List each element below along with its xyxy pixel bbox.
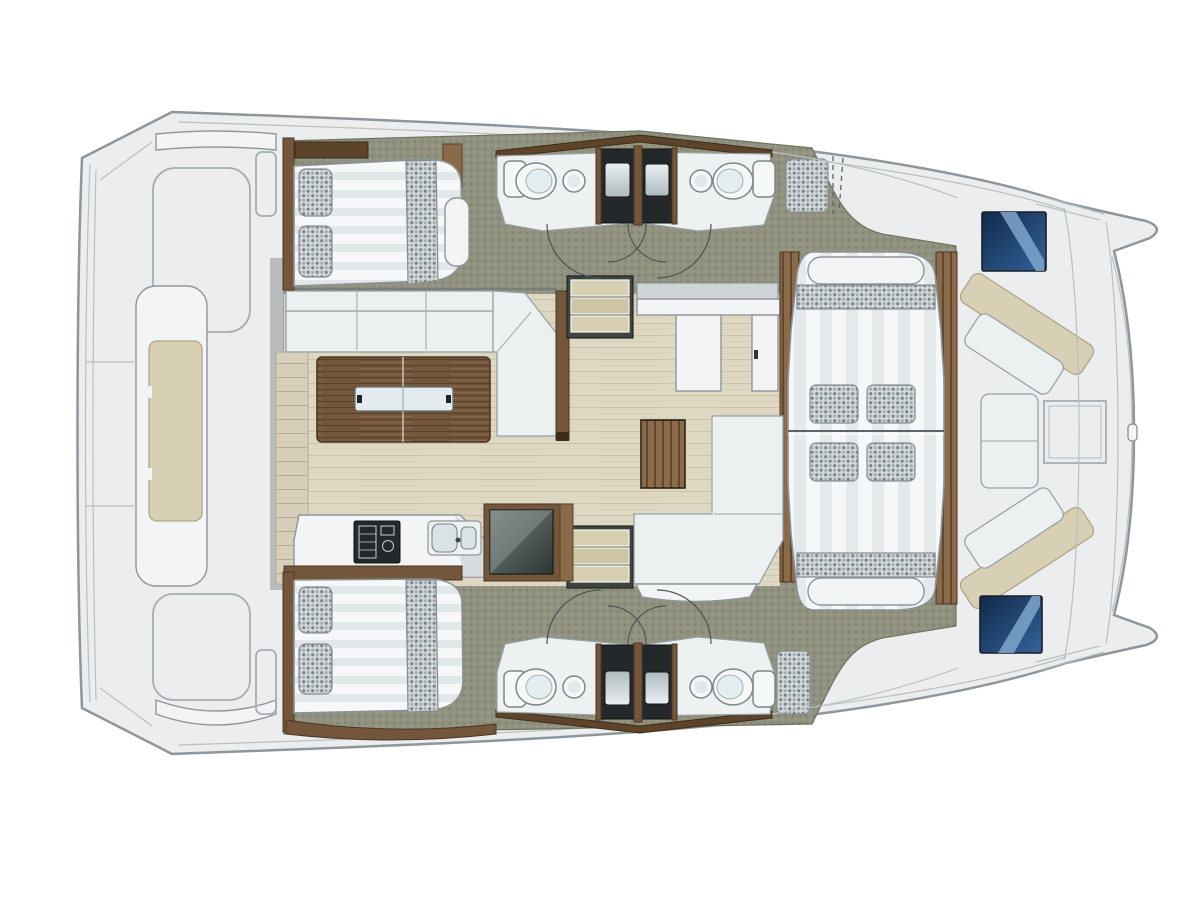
blanket-band	[406, 160, 438, 284]
coffee-table	[641, 420, 685, 488]
aft-sunpad-cushion	[149, 341, 202, 521]
galley-aft-trim	[284, 566, 462, 580]
pillow	[299, 169, 332, 216]
washbasin-inner	[568, 175, 581, 188]
blanket-band	[406, 580, 438, 712]
toilet-bowl-inner	[717, 169, 743, 193]
fridge-side-trim	[560, 504, 573, 581]
shower-divider	[634, 146, 642, 225]
pillow	[867, 385, 915, 423]
floor-plan-canvas	[0, 0, 1200, 900]
sunpad-notch-1	[145, 386, 152, 398]
sofa-back	[286, 291, 493, 311]
table-handle-left	[357, 395, 362, 403]
sink-basin-small	[461, 527, 476, 549]
pillow	[810, 443, 858, 481]
forward-lounge	[788, 252, 957, 610]
deck-pad-port	[786, 159, 828, 212]
bow-cleat	[1128, 424, 1137, 441]
stairs-port	[567, 276, 633, 338]
cockpit-table	[1044, 401, 1106, 463]
toilet-bowl-inner	[526, 169, 552, 193]
counter-back-band	[637, 283, 778, 299]
sunbed-headrest-bottom	[808, 578, 924, 605]
deck-hatch-port	[982, 212, 1046, 271]
step	[571, 298, 629, 314]
step	[571, 566, 629, 582]
pillow	[299, 226, 332, 277]
cabin-bulkhead-trim	[283, 138, 294, 290]
chaise-rim	[636, 584, 757, 602]
deck-pad-starboard	[777, 651, 810, 714]
shower-tray	[605, 163, 630, 197]
cabin-bulkhead-trim	[283, 572, 294, 732]
counter-top	[637, 299, 780, 315]
toilet-tank	[753, 161, 775, 197]
headboard-trim	[295, 142, 368, 158]
berth-foot-bench	[445, 198, 469, 266]
step	[571, 548, 629, 564]
refrigerator	[484, 504, 573, 581]
counter-column	[676, 315, 721, 391]
sunbed-band-bottom	[797, 553, 935, 577]
table-glass-insert	[355, 387, 453, 411]
step	[571, 316, 629, 332]
sink-basin-main	[432, 524, 457, 552]
galley	[284, 504, 573, 581]
stove	[354, 521, 400, 563]
transom-step-top	[156, 131, 276, 150]
shower-tray	[645, 164, 669, 196]
faucet	[456, 538, 461, 543]
shower-trim	[672, 148, 677, 224]
partition-base	[556, 432, 569, 441]
sunpad-notch-2	[145, 468, 152, 480]
floor-plan-page	[0, 0, 1200, 900]
sofa-seat	[286, 311, 493, 352]
pillow	[299, 587, 332, 633]
step	[571, 280, 629, 296]
counter-handle	[754, 350, 758, 359]
pillow	[299, 644, 332, 694]
table-handle-right	[446, 395, 451, 403]
deck-hatch-starboard	[980, 596, 1042, 653]
stairs-starboard	[567, 526, 633, 588]
pillow	[810, 385, 858, 423]
shower-trim	[596, 148, 601, 224]
double-sink	[428, 521, 481, 555]
sunbed-band-top	[797, 285, 935, 309]
step	[571, 530, 629, 546]
sunbed-headrest-top	[808, 257, 924, 284]
saloon-table	[317, 357, 490, 442]
washbasin-inner	[695, 175, 708, 188]
pillow	[867, 443, 915, 481]
